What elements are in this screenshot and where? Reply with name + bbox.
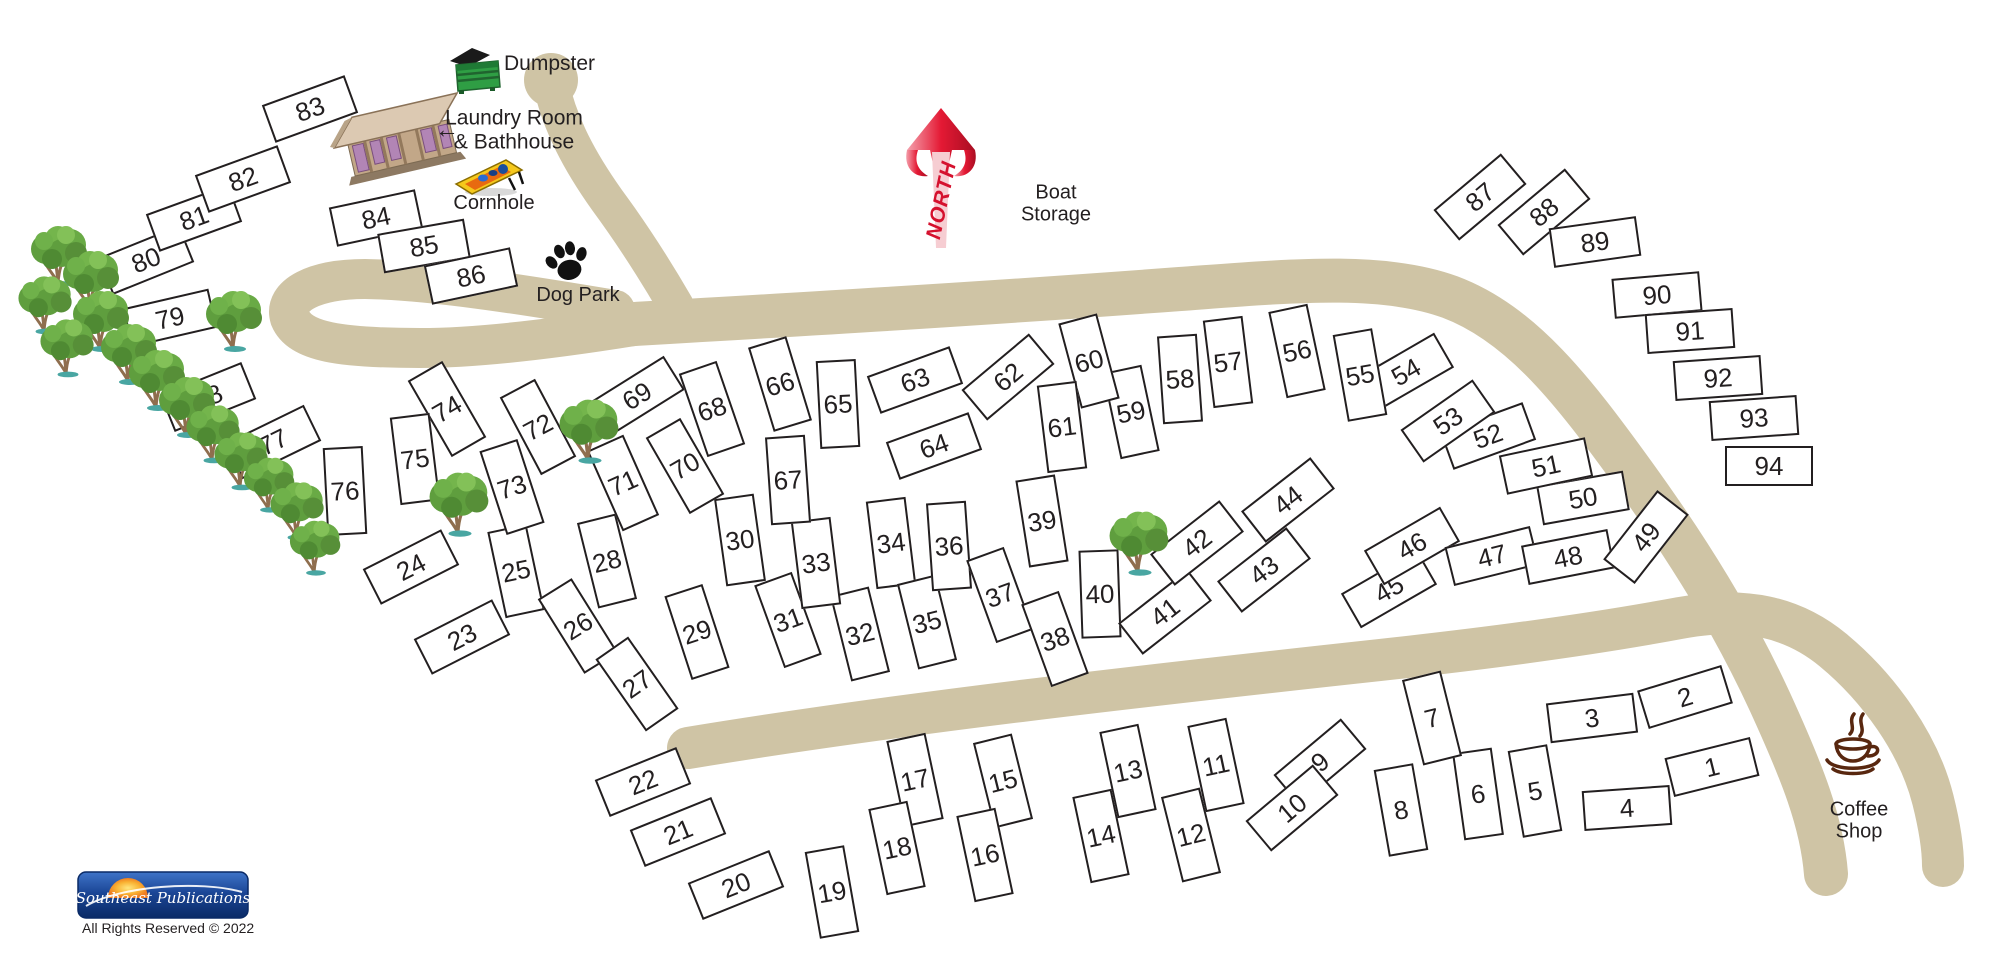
coffee-shop-line2: Shop: [1830, 821, 1889, 843]
laundry-label: Laundry Room & Bathhouse: [445, 106, 583, 153]
laundry-label-line2: & Bathhouse: [445, 130, 583, 154]
laundry-label-line1: Laundry Room: [445, 106, 583, 130]
labels-layer: Dumpster Laundry Room & Bathhouse ← Corn…: [0, 0, 2000, 978]
rights-text: All Rights Reserved © 2022: [82, 921, 254, 937]
dumpster-label: Dumpster: [504, 52, 595, 76]
coffee-shop-label: Coffee Shop: [1830, 799, 1889, 844]
dog-park-label: Dog Park: [536, 284, 619, 306]
boat-storage-line1: Boat: [1021, 182, 1091, 204]
boat-storage-label: Boat Storage: [1021, 182, 1091, 227]
coffee-shop-line1: Coffee: [1830, 799, 1889, 821]
laundry-arrow-icon: ←: [435, 118, 459, 145]
boat-storage-line2: Storage: [1021, 204, 1091, 226]
campground-map: 1234567891011121314151617181920212223242…: [0, 0, 2000, 978]
cornhole-label: Cornhole: [453, 192, 534, 214]
